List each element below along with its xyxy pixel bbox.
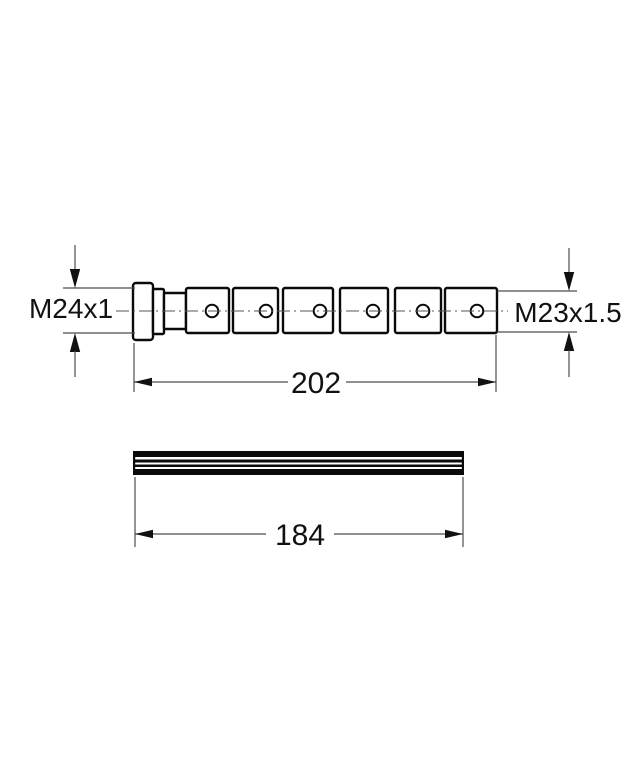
arrow-up-icon	[564, 332, 574, 351]
profile-left-edge	[133, 451, 135, 475]
dimension-length-184: 184	[135, 477, 463, 552]
dimension-length-202: 202	[134, 335, 496, 400]
length-dimension-value: 202	[291, 367, 341, 400]
left-thread-label: M24x1	[29, 293, 113, 324]
profile-band	[133, 465, 464, 468]
arrow-left-icon	[134, 378, 152, 386]
profile-band	[133, 469, 464, 475]
arrow-down-icon	[70, 269, 80, 288]
arrow-right-icon	[478, 378, 496, 386]
arrow-left-icon	[135, 530, 153, 538]
profile-strip-view	[133, 451, 464, 475]
profile-band	[133, 460, 464, 463]
part-side-view	[116, 283, 508, 340]
technical-drawing: M24x1 M23x1.5 202	[0, 0, 640, 769]
arrow-right-icon	[445, 530, 463, 538]
profile-band	[133, 451, 464, 457]
dimension-right-thread: M23x1.5	[497, 248, 622, 377]
technical-drawing-page: M24x1 M23x1.5 202	[0, 0, 640, 769]
profile-right-edge	[462, 451, 464, 475]
arrow-down-icon	[564, 272, 574, 291]
arrow-up-icon	[70, 333, 80, 352]
profile-length-dimension-value: 184	[275, 519, 325, 552]
right-thread-label: M23x1.5	[514, 297, 621, 328]
